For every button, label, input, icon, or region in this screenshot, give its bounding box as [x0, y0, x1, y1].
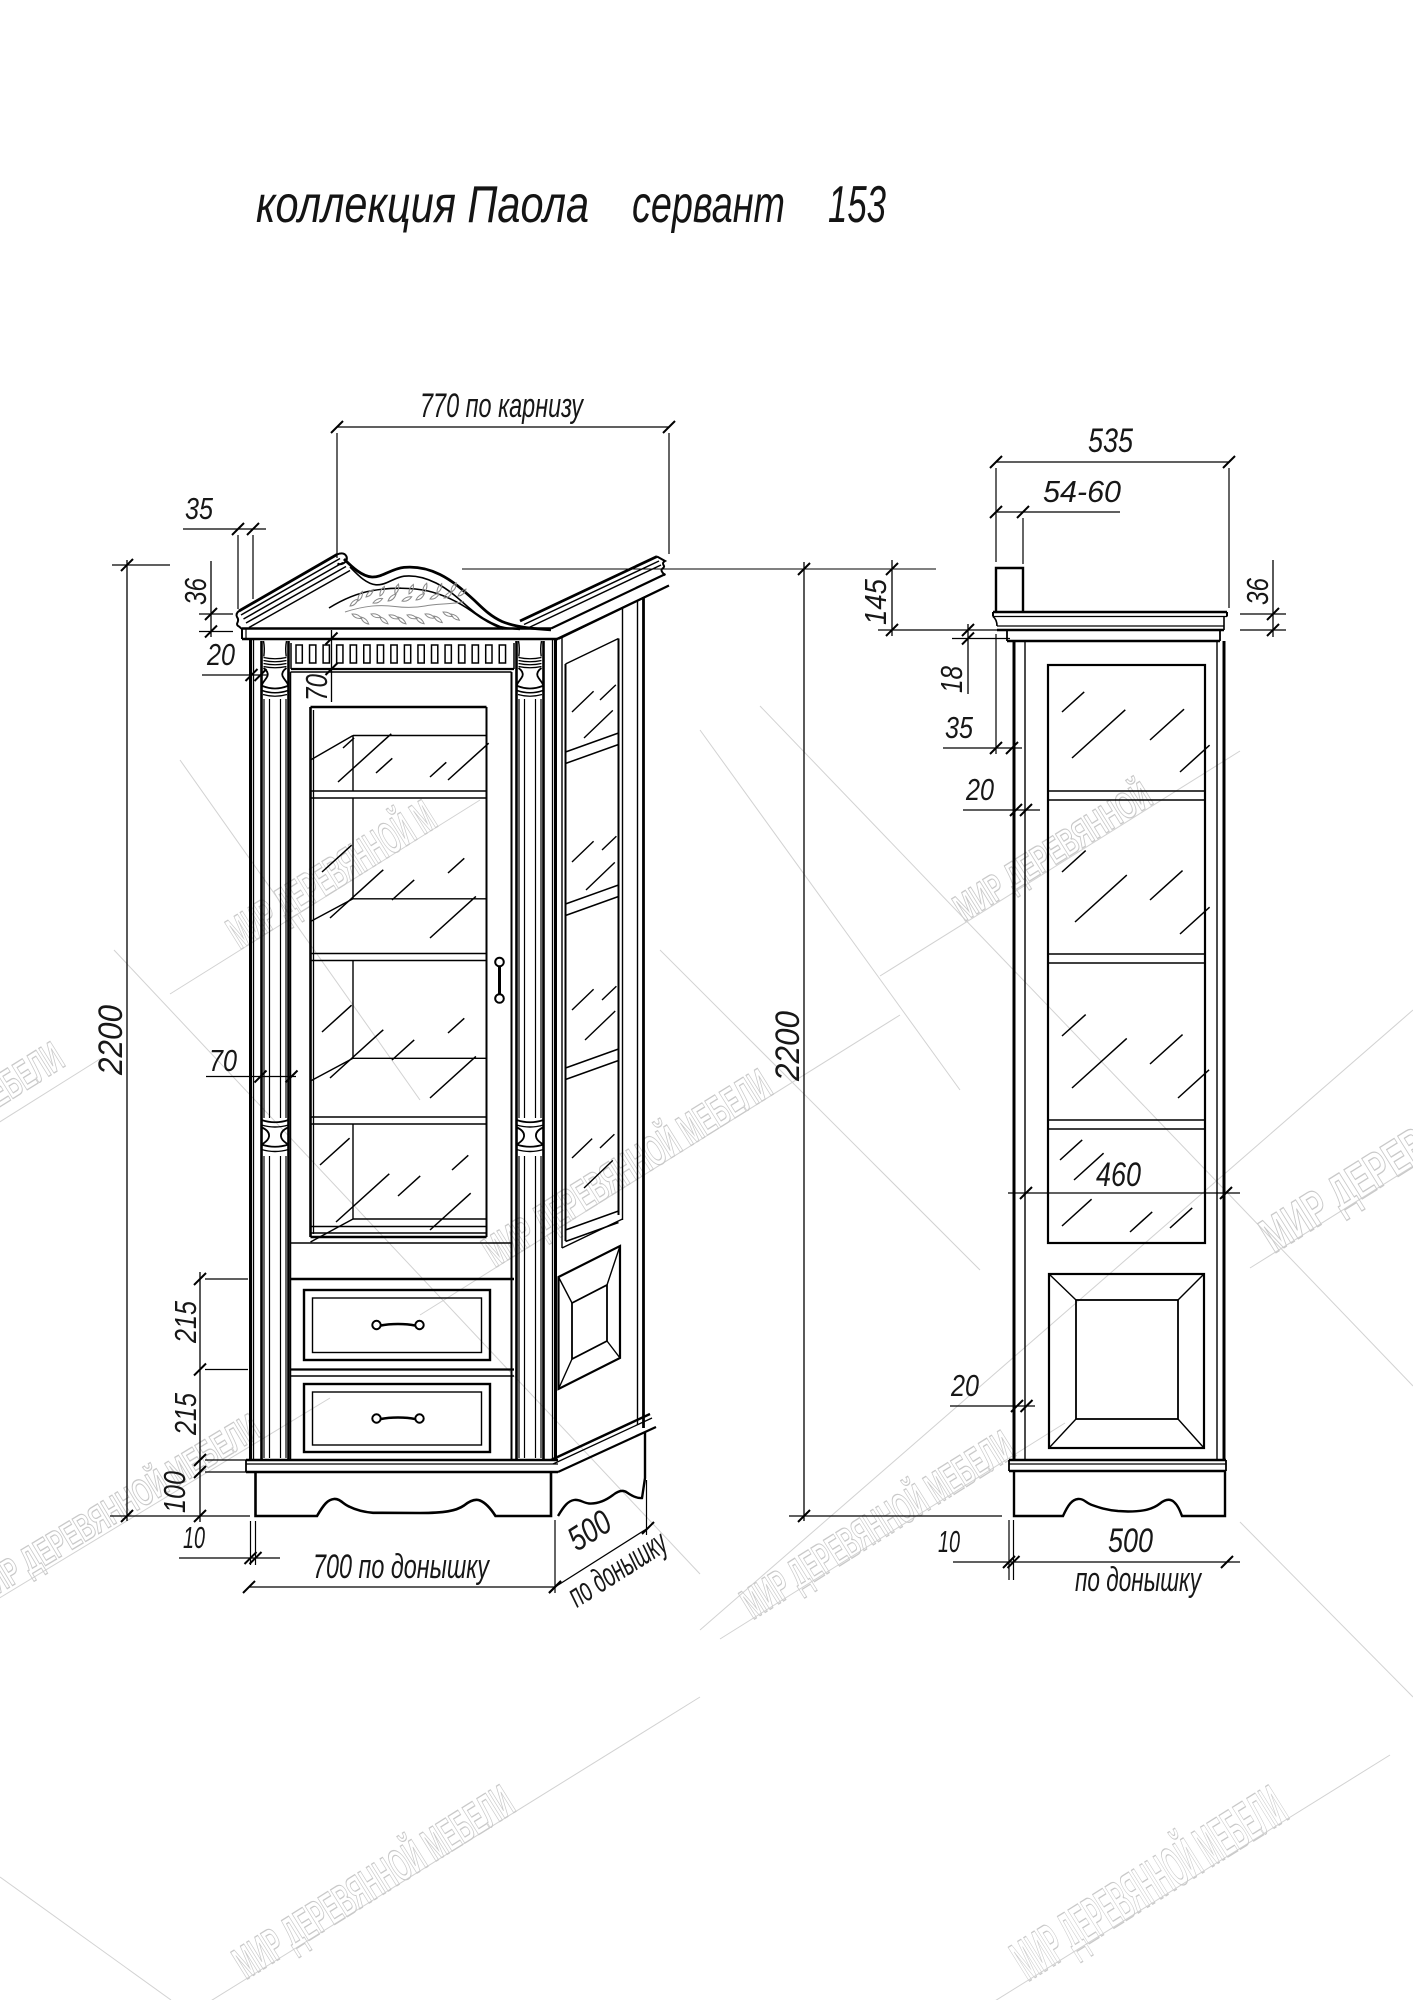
svg-text:100: 100	[157, 1471, 192, 1513]
svg-text:36: 36	[1240, 577, 1275, 605]
svg-text:153: 153	[828, 176, 886, 234]
svg-text:215: 215	[168, 1392, 203, 1435]
svg-text:20: 20	[965, 772, 994, 807]
svg-text:10: 10	[938, 1524, 960, 1559]
svg-text:10: 10	[183, 1520, 205, 1555]
svg-text:2200: 2200	[769, 1011, 807, 1082]
svg-text:215: 215	[168, 1300, 203, 1343]
svg-text:18: 18	[934, 665, 969, 693]
svg-text:460: 460	[1096, 1156, 1141, 1194]
svg-text:535: 535	[1088, 422, 1133, 460]
svg-text:по донышку: по донышку	[1075, 1561, 1202, 1599]
svg-text:145: 145	[858, 578, 893, 625]
svg-text:770 по карнизу: 770 по карнизу	[420, 387, 584, 425]
svg-text:500: 500	[1108, 1522, 1153, 1560]
svg-text:20: 20	[206, 637, 235, 672]
svg-text:36: 36	[178, 577, 213, 605]
svg-text:сервант: сервант	[632, 176, 785, 234]
svg-text:35: 35	[185, 491, 214, 526]
svg-text:35: 35	[945, 710, 974, 745]
svg-text:коллекция Паола: коллекция Паола	[256, 176, 589, 234]
svg-text:70: 70	[209, 1043, 237, 1078]
svg-text:20: 20	[950, 1368, 979, 1403]
svg-text:70: 70	[299, 674, 334, 701]
svg-text:2200: 2200	[92, 1005, 130, 1076]
svg-text:54-60: 54-60	[1043, 474, 1121, 509]
svg-text:700 по донышку: 700 по донышку	[313, 1548, 490, 1586]
